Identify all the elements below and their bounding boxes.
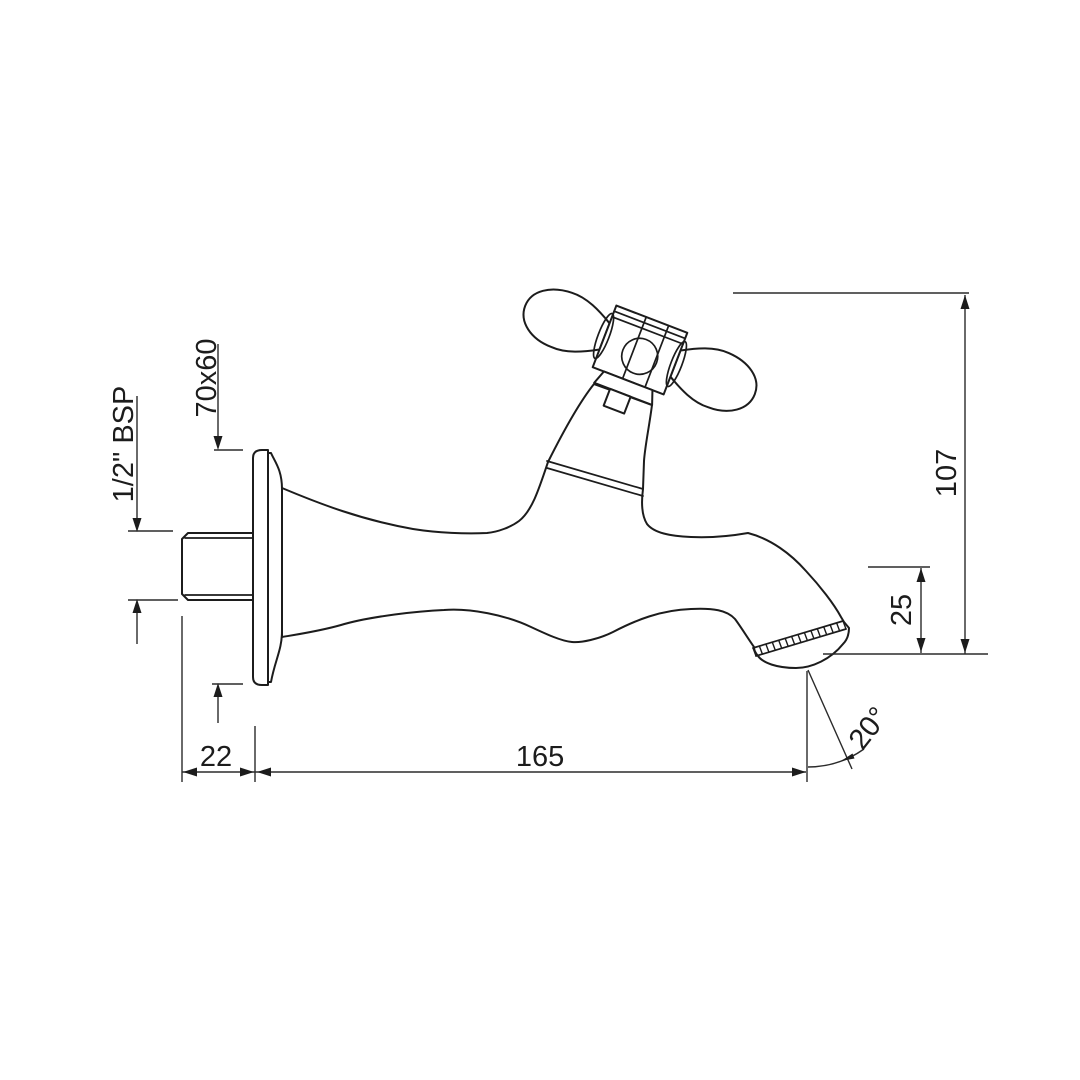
label-overall-height: 107 (931, 449, 963, 497)
tap-body (282, 384, 849, 668)
label-inlet-thread: 1/2" BSP (108, 386, 140, 503)
arrowhead-107-top (961, 295, 970, 309)
arrowhead-70x60-top (214, 436, 223, 450)
arrowhead-bsp-bottom (133, 599, 142, 613)
arrowhead-22-right (240, 768, 254, 777)
arrowhead-25-top (917, 568, 926, 582)
arrowhead-165-left (257, 768, 271, 777)
technical-drawing-page: 70x60 1/2" BSP 107 25 22 165 20° (0, 0, 1080, 1080)
arrowhead-107-bottom (961, 639, 970, 653)
label-outlet-angle: 20° (843, 701, 895, 755)
bib-tap-elevation-drawing: 70x60 1/2" BSP 107 25 22 165 20° (0, 0, 1080, 1080)
label-flange-size: 70x60 (191, 338, 223, 417)
wall-flange-plate (253, 450, 268, 685)
arrowhead-22-left (183, 768, 197, 777)
label-spout-reach: 165 (516, 741, 564, 773)
label-wall-projection: 22 (200, 741, 232, 773)
wall-flange-face (268, 453, 282, 682)
label-spout-clearance: 25 (886, 594, 918, 626)
arrowhead-70x60-bottom (214, 683, 223, 697)
arrowhead-bsp-top (133, 518, 142, 532)
inlet-thread (182, 533, 256, 600)
arrowhead-25-bottom (917, 638, 926, 652)
arrowhead-165-right (792, 768, 806, 777)
